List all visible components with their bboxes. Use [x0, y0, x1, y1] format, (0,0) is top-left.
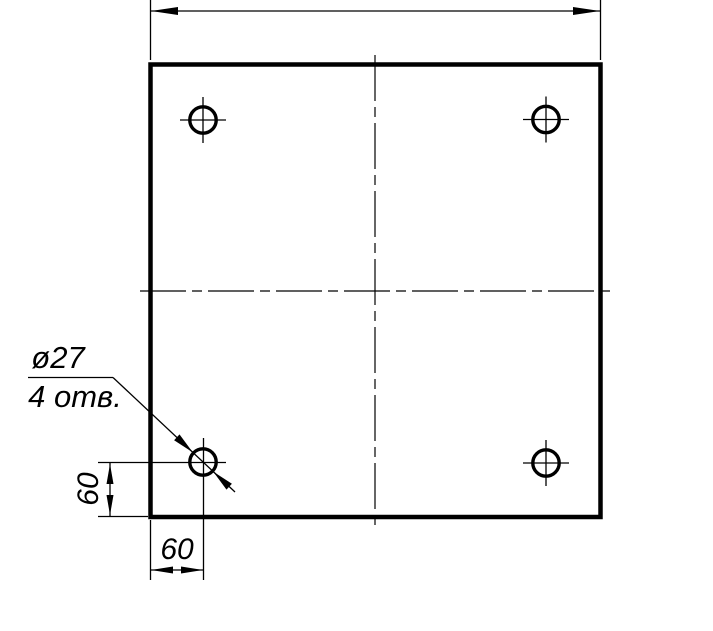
dim-top-arrow-left — [151, 7, 178, 15]
hole-top-left — [180, 97, 226, 143]
technical-drawing: 60 60 ø27 4 отв. — [0, 0, 713, 631]
drawing-canvas: 60 60 ø27 4 отв. — [0, 0, 713, 631]
dim-left-60: 60 — [72, 463, 148, 517]
plate-centerlines — [140, 55, 610, 525]
dim-left-arrow-down — [107, 495, 114, 515]
dim-top-width — [151, 0, 601, 60]
hole-bottom-right — [523, 440, 569, 486]
dim-top-arrow-right — [573, 7, 600, 15]
hole-top-right — [523, 97, 569, 143]
dim-bottom-value: 60 — [160, 533, 194, 566]
dim-bottom-arrow-right — [181, 567, 203, 574]
callout-count-label: 4 отв. — [28, 379, 122, 414]
callout-diameter-label: ø27 — [31, 340, 86, 375]
dim-bottom-60: 60 — [151, 520, 204, 580]
dim-left-arrow-up — [107, 464, 114, 484]
dim-bottom-arrow-left — [151, 567, 173, 574]
dim-left-value: 60 — [72, 472, 105, 506]
